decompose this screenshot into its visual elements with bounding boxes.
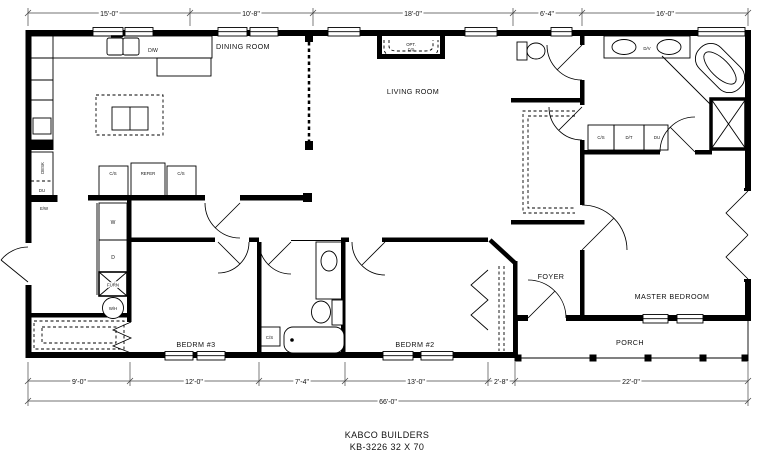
washer-label: W xyxy=(111,220,116,226)
bedroom3-door xyxy=(218,242,249,273)
dim-bottom-5: 2'-8" xyxy=(494,379,508,386)
windows xyxy=(93,28,745,361)
window xyxy=(383,352,413,361)
bedroom3-label: BEDRM #3 xyxy=(176,340,215,349)
kitchen-sink xyxy=(107,35,139,55)
window xyxy=(165,352,193,361)
window xyxy=(250,28,278,37)
bedroom2-label: BEDRM #2 xyxy=(395,340,434,349)
water-heater-label: W/H xyxy=(109,306,117,311)
porch-label: PORCH xyxy=(616,338,644,347)
window xyxy=(465,28,497,37)
window xyxy=(551,28,572,37)
dining-room-label: DINING ROOM xyxy=(216,42,270,51)
dim-overall: 66'-0" xyxy=(379,399,397,406)
utility-area: W D FURN W/H xyxy=(97,203,127,319)
bedroom2-door xyxy=(352,242,385,275)
walkin-closet-door xyxy=(549,107,582,140)
garden-tub xyxy=(690,38,751,99)
cabinet-label: C/S xyxy=(109,171,116,176)
vanity-sink xyxy=(612,40,636,55)
vanity-sink xyxy=(657,40,681,55)
porch-post xyxy=(700,355,707,362)
model-number: KB-3226 32 X 70 xyxy=(350,442,425,452)
dim-bottom-2: 12'-0" xyxy=(185,379,203,386)
tall-cabinet xyxy=(31,58,53,140)
bedroom2-closet xyxy=(471,266,504,351)
window xyxy=(93,28,123,37)
opt-fp-label2: F/P xyxy=(408,48,415,53)
dim-bottom-3: 7'-4" xyxy=(295,379,309,386)
master-bath-door xyxy=(660,117,695,152)
refrigerator xyxy=(131,163,165,196)
kitchen-counter-row: C/S REFER C/S xyxy=(99,163,196,196)
dressing-table-label: D/T xyxy=(626,135,633,140)
master-bedroom-door xyxy=(582,205,627,250)
hall-bath: C/S xyxy=(259,241,344,354)
water-heater: W/H xyxy=(103,298,124,319)
bath-sink xyxy=(321,251,337,271)
window xyxy=(677,315,703,324)
toilet-room-door xyxy=(547,45,582,80)
builder-name: KABCO BUILDERS xyxy=(345,430,430,440)
dimensions-top: 15'-0" 10'-8" 18'-0" 6'-4" 16'-0" xyxy=(25,8,751,26)
dishwasher-label: D/W xyxy=(148,48,158,54)
window xyxy=(328,28,360,37)
refrigerator-label: REFER xyxy=(141,171,156,176)
shower xyxy=(711,99,746,149)
cabinet-label: C/S xyxy=(266,335,273,340)
floor-plan-page: D/W C/S REFER C/S DESK DU E/W xyxy=(0,0,771,457)
foyer-label: FOYER xyxy=(538,272,565,281)
furnace: FURN xyxy=(99,272,127,296)
living-room-label: LIVING ROOM xyxy=(387,87,439,96)
dim-bottom-6: 22'-0" xyxy=(622,379,640,386)
porch-post xyxy=(645,355,652,362)
toilet xyxy=(517,42,545,60)
fireplace-nook: OPT. F/P xyxy=(384,40,438,56)
du-label: DU xyxy=(654,135,660,140)
dim-top-2: 10'-8" xyxy=(242,11,260,18)
ew-label: E/W xyxy=(40,206,49,211)
range xyxy=(157,58,211,76)
window xyxy=(125,28,153,37)
desk-unit: DESK DU xyxy=(31,152,53,198)
interior-walls xyxy=(26,33,713,353)
dimensions-bottom: 9'-0" 12'-0" 7'-4" 13'-0" 2'-8" 22'-0" 6… xyxy=(25,362,751,406)
master-double-doors xyxy=(726,188,752,282)
window xyxy=(698,28,745,37)
cabinet-label: C/S xyxy=(597,135,604,140)
bifold-door xyxy=(471,270,488,330)
opt-fp-label: OPT. xyxy=(406,42,416,47)
desk-label: DESK xyxy=(40,162,45,174)
cabinet-label: C/S xyxy=(177,171,184,176)
dim-top-1: 15'-0" xyxy=(100,11,118,18)
bathtub xyxy=(284,327,344,353)
toilet xyxy=(312,300,344,325)
kitchen: D/W C/S REFER C/S DESK DU E/W xyxy=(26,35,213,211)
dim-top-3: 18'-0" xyxy=(404,11,422,18)
front-door xyxy=(528,280,566,318)
hall-bath-door xyxy=(259,242,291,274)
dim-bottom-1: 9'-0" xyxy=(72,379,86,386)
side-entry-door xyxy=(1,247,28,282)
dim-top-4: 6'-4" xyxy=(540,11,554,18)
double-vanity-label: D/V xyxy=(643,46,650,51)
title-block: KABCO BUILDERS KB-3226 32 X 70 xyxy=(345,430,430,452)
porch-post xyxy=(515,355,522,362)
master-bedroom-label: MASTER BEDROOM xyxy=(635,292,710,301)
kitchen-island xyxy=(96,95,163,135)
master-vanity: D/V xyxy=(604,36,690,58)
floor-plan-canvas: D/W C/S REFER C/S DESK DU E/W xyxy=(0,0,771,457)
dim-top-5: 16'-0" xyxy=(656,11,674,18)
dryer-label: D xyxy=(111,255,115,261)
window xyxy=(643,315,668,324)
dim-bottom-4: 13'-0" xyxy=(407,379,425,386)
window xyxy=(218,28,247,37)
exterior-walls xyxy=(26,30,752,358)
furnace-label: FURN xyxy=(107,283,119,288)
bedroom3-closet xyxy=(34,321,131,353)
window xyxy=(421,352,453,361)
window xyxy=(197,352,225,361)
porch-post xyxy=(590,355,597,362)
du-label: DU xyxy=(39,188,45,193)
walkin-closet-shelves xyxy=(523,111,575,213)
master-cabinets: C/S D/T DU xyxy=(588,125,668,150)
hall-door xyxy=(205,203,240,238)
porch-post xyxy=(742,355,749,362)
